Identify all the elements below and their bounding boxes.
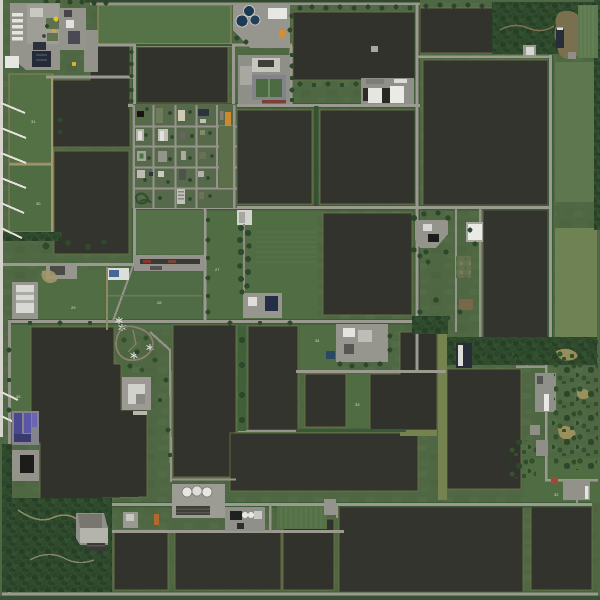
svg-text:30: 30 [36,201,41,206]
svg-text:32: 32 [554,492,559,497]
svg-text:29: 29 [71,305,76,310]
svg-text:27: 27 [215,267,220,272]
svg-text:34: 34 [315,338,320,343]
svg-text:28: 28 [157,300,162,305]
svg-text:35: 35 [16,394,21,399]
svg-text:33: 33 [355,402,360,407]
svg-text:31: 31 [31,119,36,124]
